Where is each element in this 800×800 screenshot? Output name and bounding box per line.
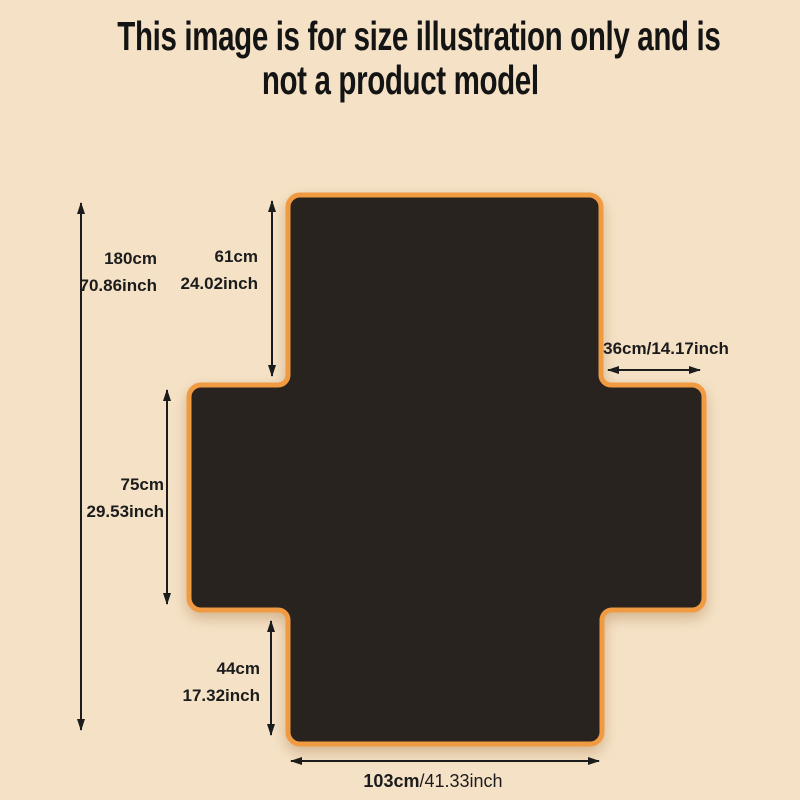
label-bottom-width-cm: 103cm: [363, 771, 419, 791]
label-side-width-text: 36cm/14.17inch: [603, 339, 729, 358]
size-diagram: [0, 0, 800, 800]
size-illustration-page: This image is for size illustration only…: [0, 0, 800, 800]
label-bottom-width-inch: /41.33inch: [419, 771, 502, 791]
label-seat-height-cm: 75cm: [121, 475, 164, 494]
label-front-height-cm: 44cm: [217, 659, 260, 678]
label-front-height-inch: 17.32inch: [183, 686, 261, 705]
label-back-height-inch: 24.02inch: [181, 274, 259, 293]
label-total-height: 180cm 70.86inch: [80, 245, 158, 299]
label-back-height-cm: 61cm: [215, 247, 258, 266]
label-seat-height: 75cm 29.53inch: [87, 471, 165, 525]
label-side-width: 36cm/14.17inch: [556, 335, 776, 362]
label-total-height-inch: 70.86inch: [80, 276, 158, 295]
label-total-height-cm: 180cm: [104, 249, 157, 268]
label-bottom-width: 103cm/41.33inch: [283, 768, 583, 795]
label-front-height: 44cm 17.32inch: [183, 655, 261, 709]
sofa-cover-shape: [189, 195, 704, 744]
label-seat-height-inch: 29.53inch: [87, 502, 165, 521]
label-back-height: 61cm 24.02inch: [181, 243, 259, 297]
